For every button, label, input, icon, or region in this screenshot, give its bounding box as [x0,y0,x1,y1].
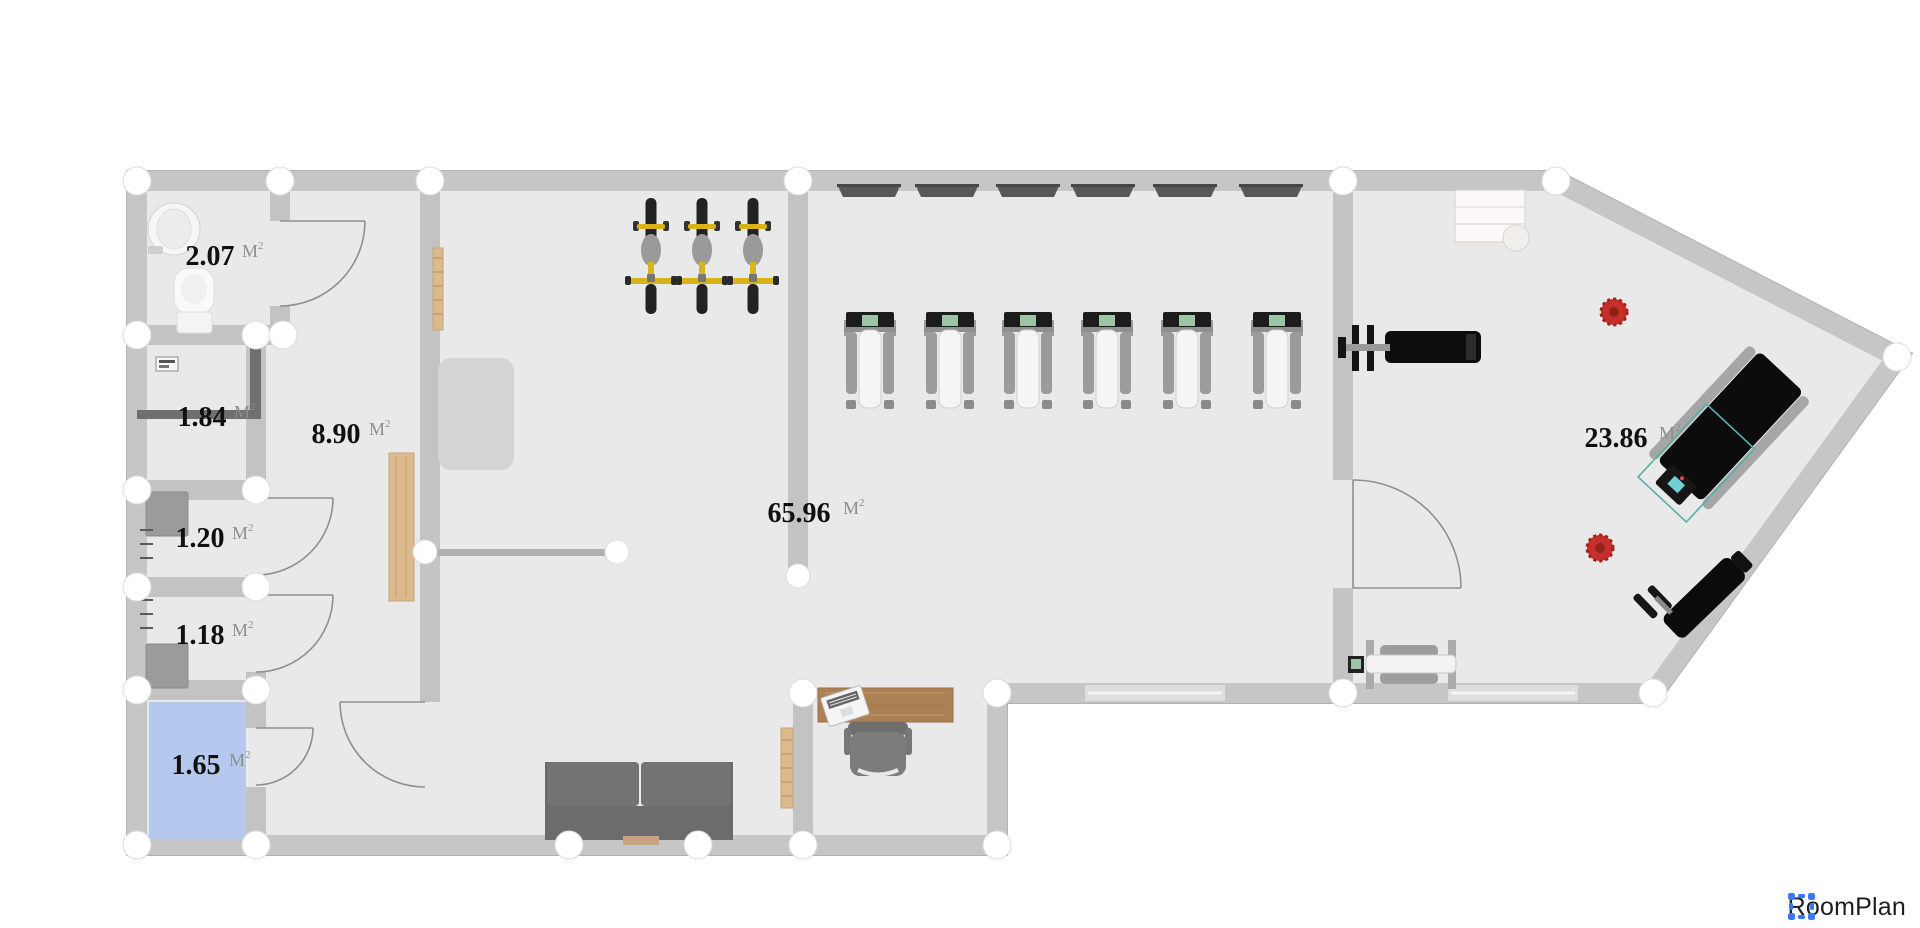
shelf-unit [1455,190,1529,251]
plant-top [1601,299,1627,325]
roomplan-logo: RoomPlan [1788,893,1906,922]
washer-icon [156,357,178,371]
area-storage[interactable]: 1.65 [172,750,221,781]
floor-plan-canvas: 2.07 M2 1.84 M2 1.20 M2 1.18 M2 1.65 M2 … [0,0,1920,928]
area-main-gym[interactable]: 65.96 [768,498,831,529]
wall-bars-desk [781,728,793,808]
toilet [174,268,214,333]
half-wall [425,549,617,556]
area-stall-lower[interactable]: 1.18 [176,620,225,651]
area-bathroom[interactable]: 2.07 [186,241,235,272]
plant-bottom [1587,535,1613,561]
wall-bars-top [433,248,443,330]
massage-table [438,358,514,470]
roomplan-icon [1788,893,1815,920]
exercise-bikes [625,198,779,314]
office-chair [844,722,912,776]
area-laundry[interactable]: 1.84 [178,402,227,433]
area-stall-upper[interactable]: 1.20 [176,523,225,554]
area-hallway[interactable]: 8.90 [312,419,361,450]
reception-counter [389,453,414,601]
area-free-weights[interactable]: 23.86 [1585,423,1648,454]
